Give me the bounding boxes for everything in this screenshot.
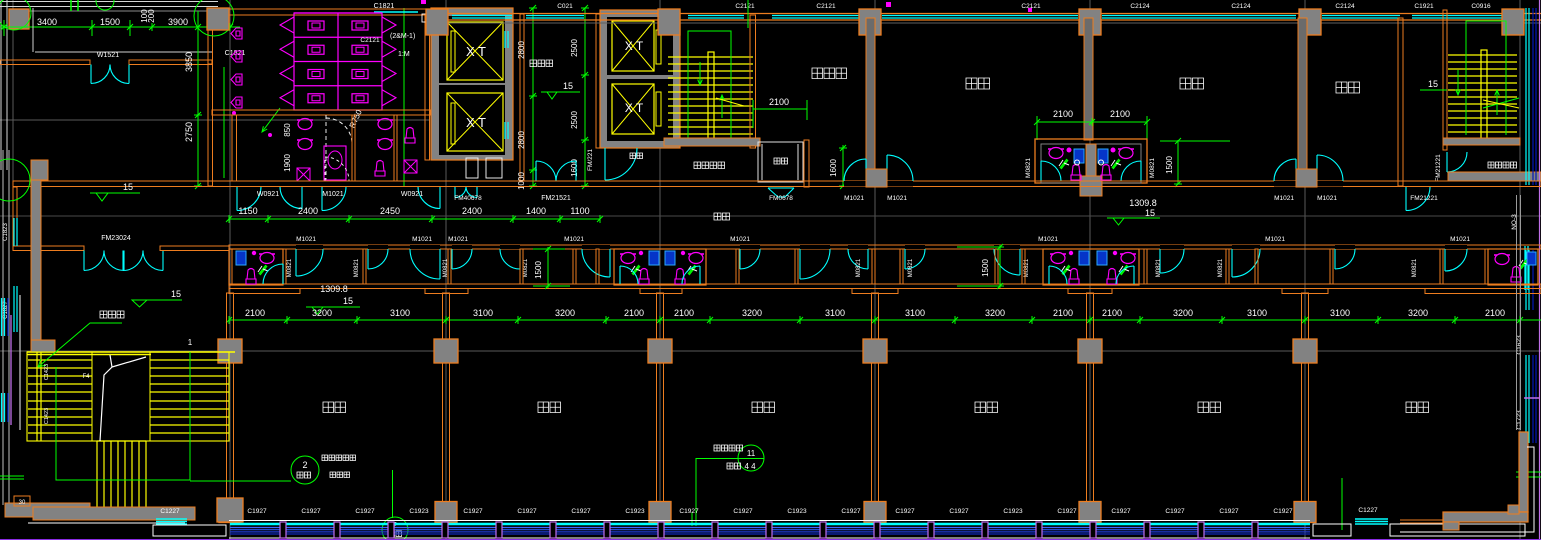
svg-text:F4: F4 <box>82 374 90 380</box>
svg-text:M0821: M0821 <box>1149 158 1156 178</box>
svg-text:C2121: C2121 <box>735 3 755 10</box>
svg-text:C1823: C1823 <box>3 223 9 241</box>
svg-text:1:M: 1:M <box>398 51 410 58</box>
svg-text:C1923: C1923 <box>1003 508 1023 515</box>
svg-text:3900: 3900 <box>168 17 188 27</box>
svg-text:FM21221: FM21221 <box>1410 195 1438 202</box>
svg-text:X T: X T <box>625 101 644 115</box>
svg-text:M0821: M0821 <box>1156 258 1162 277</box>
svg-text:M0821: M0821 <box>523 258 529 277</box>
svg-text:2100: 2100 <box>624 308 644 318</box>
svg-text:FM0678: FM0678 <box>769 195 793 202</box>
svg-text:1600: 1600 <box>829 159 838 177</box>
svg-text:M1021: M1021 <box>1317 195 1337 202</box>
svg-text:M0821: M0821 <box>1025 158 1032 178</box>
svg-text:3100: 3100 <box>390 308 410 318</box>
svg-text:M0821: M0821 <box>1412 258 1418 277</box>
svg-text:15: 15 <box>171 289 181 299</box>
svg-text:15: 15 <box>343 296 353 306</box>
svg-text:M0821: M0821 <box>1218 258 1224 277</box>
svg-text:FM21221: FM21221 <box>1435 154 1442 182</box>
svg-text:30: 30 <box>19 500 26 506</box>
svg-text:M1021: M1021 <box>1038 236 1058 243</box>
svg-text:C1227: C1227 <box>1358 507 1378 514</box>
svg-text:2100: 2100 <box>1485 308 1505 318</box>
svg-text:M1021: M1021 <box>448 236 468 243</box>
svg-text:200: 200 <box>147 9 156 23</box>
svg-text:C1921: C1921 <box>1414 3 1434 10</box>
svg-text:1500: 1500 <box>100 17 120 27</box>
svg-text:C1927: C1927 <box>733 508 753 515</box>
svg-text:C1923: C1923 <box>409 508 429 515</box>
svg-text:C021: C021 <box>557 3 573 10</box>
svg-text:C2121: C2121 <box>816 3 836 10</box>
svg-text:3100: 3100 <box>1247 308 1267 318</box>
svg-text:3100: 3100 <box>473 308 493 318</box>
svg-text:M0821: M0821 <box>287 258 293 277</box>
svg-text:2400: 2400 <box>298 206 318 216</box>
svg-text:M1021: M1021 <box>887 195 907 202</box>
svg-text:C1927: C1927 <box>949 508 969 515</box>
svg-text:2100: 2100 <box>769 97 789 107</box>
svg-text:C1927: C1927 <box>301 508 321 515</box>
svg-text:X T: X T <box>466 115 486 130</box>
svg-text:X T: X T <box>466 44 486 59</box>
svg-text:3200: 3200 <box>312 308 332 318</box>
svg-text:3100: 3100 <box>1330 308 1350 318</box>
svg-text:3200: 3200 <box>985 308 1005 318</box>
svg-text:C1423: C1423 <box>44 364 50 380</box>
svg-text:C2124: C2124 <box>1130 3 1150 10</box>
svg-text:X T: X T <box>625 39 644 53</box>
svg-text:M1021: M1021 <box>564 236 584 243</box>
svg-text:1500: 1500 <box>534 261 543 279</box>
svg-text:C1927: C1927 <box>841 508 861 515</box>
svg-text:3200: 3200 <box>742 308 762 318</box>
svg-text:2100: 2100 <box>674 308 694 318</box>
svg-text:15: 15 <box>563 81 573 91</box>
svg-text:C0916: C0916 <box>1471 3 1491 10</box>
svg-text:FM23024: FM23024 <box>101 235 131 242</box>
svg-text:3200: 3200 <box>1408 308 1428 318</box>
svg-text:2450: 2450 <box>380 206 400 216</box>
svg-text:C1927: C1927 <box>1219 508 1239 515</box>
svg-text:15: 15 <box>123 182 133 192</box>
svg-text:C1927: C1927 <box>1165 508 1185 515</box>
svg-text:2100: 2100 <box>1102 308 1122 318</box>
svg-text:2100: 2100 <box>245 308 265 318</box>
svg-text:C1723: C1723 <box>1516 410 1523 430</box>
svg-text:C1927: C1927 <box>1057 508 1077 515</box>
svg-text:C1623: C1623 <box>1516 335 1523 355</box>
svg-text:2800: 2800 <box>517 41 526 59</box>
svg-text:M1021: M1021 <box>1274 195 1294 202</box>
svg-text:3200: 3200 <box>1173 308 1193 318</box>
svg-text:C1927: C1927 <box>355 508 375 515</box>
svg-text:M1021: M1021 <box>412 236 432 243</box>
svg-text:2400: 2400 <box>462 206 482 216</box>
svg-text:M1021: M1021 <box>730 236 750 243</box>
svg-text:15: 15 <box>1145 208 1155 218</box>
svg-text:1150: 1150 <box>238 206 257 216</box>
svg-text:3100: 3100 <box>825 308 845 318</box>
svg-text:C2124: C2124 <box>1231 3 1251 10</box>
svg-text:3400: 3400 <box>37 17 57 27</box>
svg-text:FM21521: FM21521 <box>541 195 571 202</box>
svg-text:2100: 2100 <box>1053 308 1073 318</box>
svg-text:C1923: C1923 <box>625 508 645 515</box>
svg-text:1100: 1100 <box>570 206 589 216</box>
svg-text:C1927: C1927 <box>1273 508 1293 515</box>
svg-text:M1021: M1021 <box>322 191 344 198</box>
svg-text:M1021: M1021 <box>844 195 864 202</box>
svg-text:C1927: C1927 <box>463 508 483 515</box>
svg-text:3850: 3850 <box>184 52 194 72</box>
svg-text:3100: 3100 <box>905 308 925 318</box>
svg-text:1309.8: 1309.8 <box>320 284 348 294</box>
svg-text:4 4: 4 4 <box>744 462 756 471</box>
svg-text:C1927: C1927 <box>571 508 591 515</box>
svg-text:C1927: C1927 <box>1111 508 1131 515</box>
svg-text:C1423: C1423 <box>44 408 50 424</box>
svg-text:2: 2 <box>302 460 307 470</box>
svg-text:C1227: C1227 <box>160 508 180 515</box>
svg-text:W0921: W0921 <box>257 191 279 198</box>
svg-text:1400: 1400 <box>526 206 546 216</box>
svg-text:M1021: M1021 <box>296 236 316 243</box>
svg-text:C1821: C1821 <box>374 3 395 10</box>
svg-text:15: 15 <box>1428 79 1438 89</box>
svg-text:W1521: W1521 <box>97 52 119 59</box>
svg-text:M0821: M0821 <box>856 258 862 277</box>
svg-text:M1021: M1021 <box>1450 236 1470 243</box>
svg-text:M1021: M1021 <box>1265 236 1285 243</box>
svg-text:C1927: C1927 <box>895 508 915 515</box>
svg-text:1900: 1900 <box>283 154 292 172</box>
svg-text:W0921: W0921 <box>401 191 423 198</box>
svg-text:2750: 2750 <box>184 122 194 142</box>
svg-text:C1927: C1927 <box>679 508 699 515</box>
svg-text:1: 1 <box>188 338 193 347</box>
svg-text:C2121: C2121 <box>360 37 380 44</box>
svg-text:850: 850 <box>283 123 292 137</box>
svg-text:1500: 1500 <box>981 259 990 277</box>
svg-text:1500: 1500 <box>1165 156 1174 174</box>
svg-text:2100: 2100 <box>1110 109 1130 119</box>
svg-text:C1927: C1927 <box>247 508 267 515</box>
svg-text:FM/221: FM/221 <box>587 149 594 171</box>
svg-text:C1923: C1923 <box>787 508 807 515</box>
svg-text:M0821: M0821 <box>908 258 914 277</box>
svg-text:C1927: C1927 <box>517 508 537 515</box>
svg-text:2500: 2500 <box>570 111 579 129</box>
svg-text:3200: 3200 <box>555 308 575 318</box>
svg-text:2500: 2500 <box>570 39 579 57</box>
svg-text:11: 11 <box>747 449 756 458</box>
svg-text:2100: 2100 <box>1053 109 1073 119</box>
svg-text:1309.8: 1309.8 <box>1129 198 1157 208</box>
svg-text:2800: 2800 <box>517 131 526 149</box>
svg-text:M0821: M0821 <box>354 258 360 277</box>
svg-text:FM40678: FM40678 <box>454 195 482 202</box>
svg-text:(2&M-1): (2&M-1) <box>390 33 415 40</box>
svg-text:C2124: C2124 <box>1335 3 1355 10</box>
